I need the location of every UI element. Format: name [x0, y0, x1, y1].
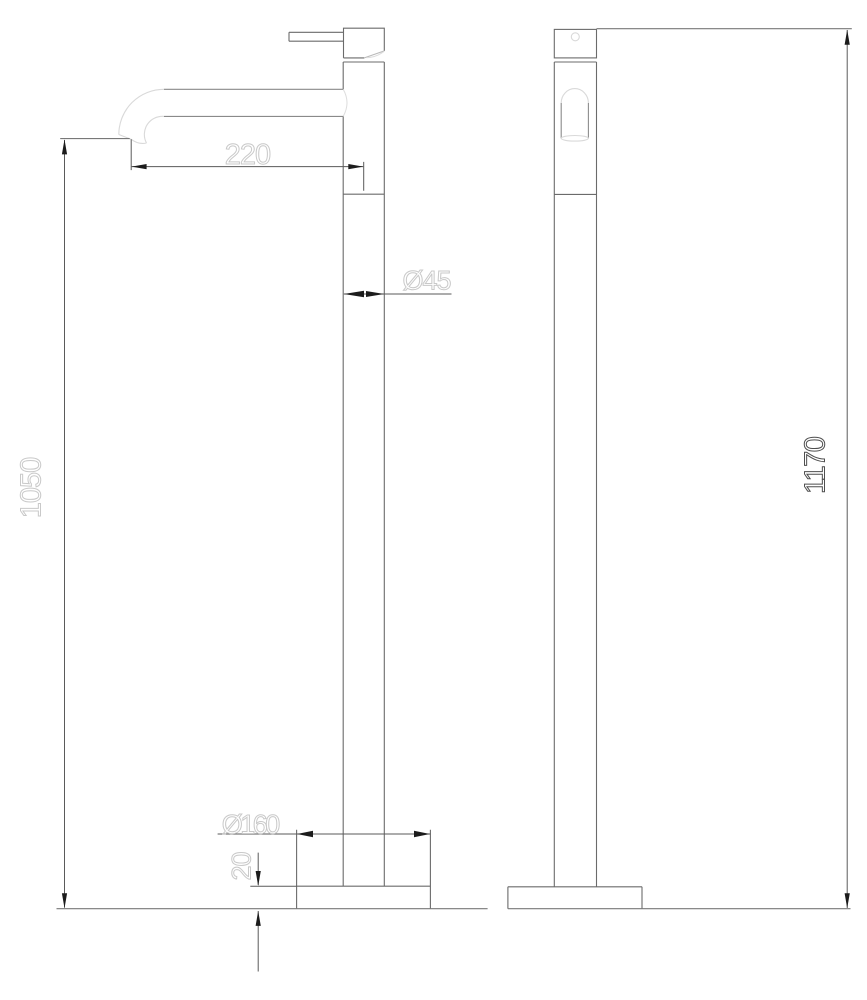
svg-text:20: 20 [226, 852, 256, 880]
svg-text:Ø45: Ø45 [402, 266, 450, 296]
svg-text:220: 220 [225, 139, 270, 171]
svg-text:1050: 1050 [16, 458, 48, 519]
svg-text:1170: 1170 [800, 437, 832, 494]
svg-text:Ø160: Ø160 [222, 810, 280, 840]
